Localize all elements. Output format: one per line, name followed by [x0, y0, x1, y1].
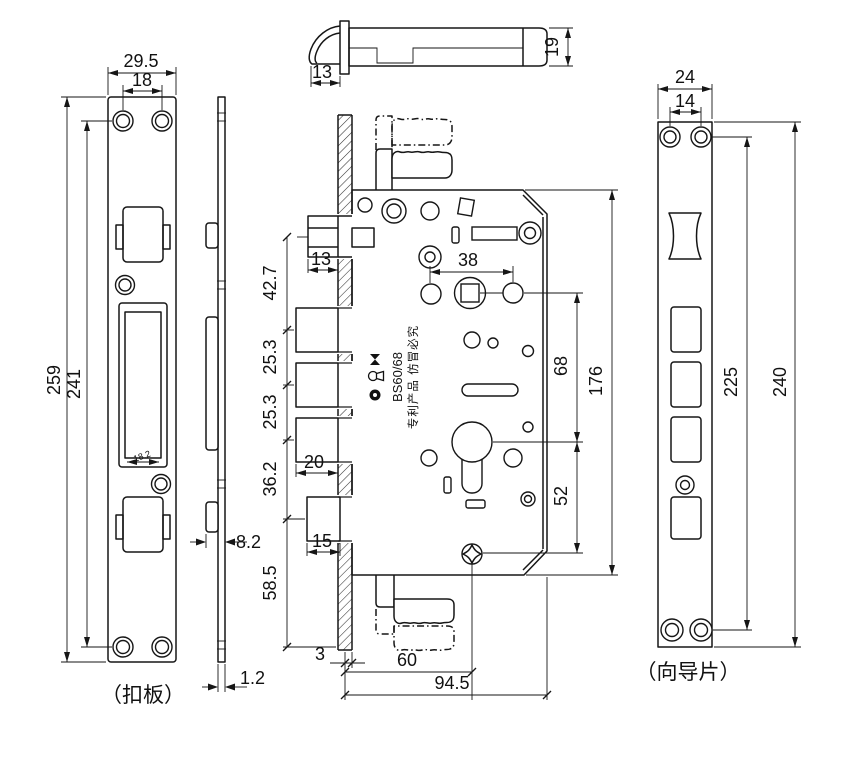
dim-body-spindle-to-cylinder: 68 — [551, 356, 571, 376]
case-stamp: BS60/68 专利产品 仿冒必究 — [369, 325, 421, 429]
dim-body-spacing-1: 42.7 — [260, 265, 280, 300]
keyhole-icon — [369, 372, 384, 381]
deadbolt-1 — [296, 308, 338, 352]
dim-body-spacing-4: 36.2 — [260, 461, 280, 496]
dim-body-cylinder-to-bottom: 52 — [551, 486, 571, 506]
guide-plate-mounting-holes — [660, 127, 712, 641]
bowtie-icon — [370, 354, 380, 365]
hook-bolt-top — [376, 116, 452, 190]
dim-body-bolt-width: 20 — [304, 452, 324, 472]
dim-strike-outer-width: 29.5 — [123, 51, 158, 71]
guide-plate-outline — [658, 122, 712, 647]
strike-plate-latch-cutout — [116, 207, 170, 262]
side-tab-3 — [206, 502, 218, 532]
dim-strike-tab-depth: 8.2 — [236, 532, 261, 552]
strike-plate-dimensions: 29.5 18 259 241 — [44, 51, 176, 662]
drawing-canvas: 18.2 29.5 18 259 241 — [0, 0, 860, 760]
euro-cylinder-hole — [452, 422, 492, 493]
dim-topview-case-thickness: 19 — [542, 37, 562, 57]
strike-plate-front-view: 18.2 — [108, 97, 176, 662]
latch-bolt-top-outline — [309, 26, 340, 64]
caption-strike-plate: （扣板） — [101, 684, 185, 707]
bottom-spindle-hole — [462, 544, 482, 564]
dim-body-backset: 60 — [397, 650, 417, 670]
dim-body-handle-spacing: 38 — [458, 250, 478, 270]
dim-strike-hole-spacing: 18 — [132, 70, 152, 90]
captions: （扣板） （向导片） — [101, 661, 741, 707]
lock-body-view: BS60/68 专利产品 仿冒必究 — [296, 115, 547, 700]
latch-bolt-front — [297, 216, 374, 257]
dim-guide-outer-width: 24 — [675, 67, 695, 87]
brand-circle-icon — [370, 390, 381, 401]
side-tab-2 — [206, 317, 218, 450]
dim-body-latch-width: 13 — [311, 249, 331, 269]
dim-guide-hole-spacing: 14 — [675, 91, 695, 111]
side-plate-strip — [218, 97, 225, 662]
strike-plate-side-view: 8.2 1.2 — [190, 97, 265, 692]
lock-top-view: 13 19 — [309, 21, 573, 87]
dim-guide-hole-distance: 225 — [721, 367, 741, 397]
lock-case-outline — [352, 190, 547, 575]
dim-body-depth: 94.5 — [434, 673, 469, 693]
strike-plate-outline — [108, 97, 176, 662]
hook-bolt-bottom — [376, 575, 454, 650]
dim-strike-hole-distance: 241 — [64, 369, 84, 399]
guide-plate-dimensions: 24 14 225 240 — [658, 67, 801, 647]
handle-screw-hole-left — [421, 284, 441, 304]
strike-plate-mounting-holes — [113, 111, 172, 657]
dim-strike-thickness: 1.2 — [240, 668, 265, 688]
mortise-lock-technical-drawing: 18.2 29.5 18 259 241 — [0, 0, 860, 760]
dim-body-spacing-2: 25.3 — [260, 339, 280, 374]
dim-guide-overall-height: 240 — [770, 367, 790, 397]
dim-strike-overall-height: 259 — [44, 365, 64, 395]
spool-cutout — [669, 213, 701, 259]
strike-plate-deadbolt-cutout: 18.2 — [119, 303, 167, 467]
side-tab-1 — [206, 223, 218, 248]
stamp-model: BS60/68 — [390, 352, 405, 402]
case-holes — [358, 198, 541, 508]
caption-guide-plate: （向导片） — [636, 661, 741, 684]
dim-body-face-offset: 3 — [315, 644, 325, 664]
dim-body-height: 176 — [586, 366, 606, 396]
dim-topview-latch-projection: 13 — [312, 62, 332, 82]
deadbolt-2 — [296, 363, 338, 407]
dim-body-spacing-5: 58.5 — [260, 565, 280, 600]
dim-body-spacing-3: 25.3 — [260, 394, 280, 429]
faceplate-top-view — [340, 21, 349, 74]
guide-plate-view — [658, 122, 712, 647]
dim-body-aux-width: 15 — [312, 531, 332, 551]
case-top-view — [349, 28, 547, 66]
strike-plate-aux-cutout — [116, 497, 170, 552]
stamp-patent: 专利产品 仿冒必究 — [406, 325, 420, 429]
handle-screw-hole-right — [503, 283, 523, 303]
